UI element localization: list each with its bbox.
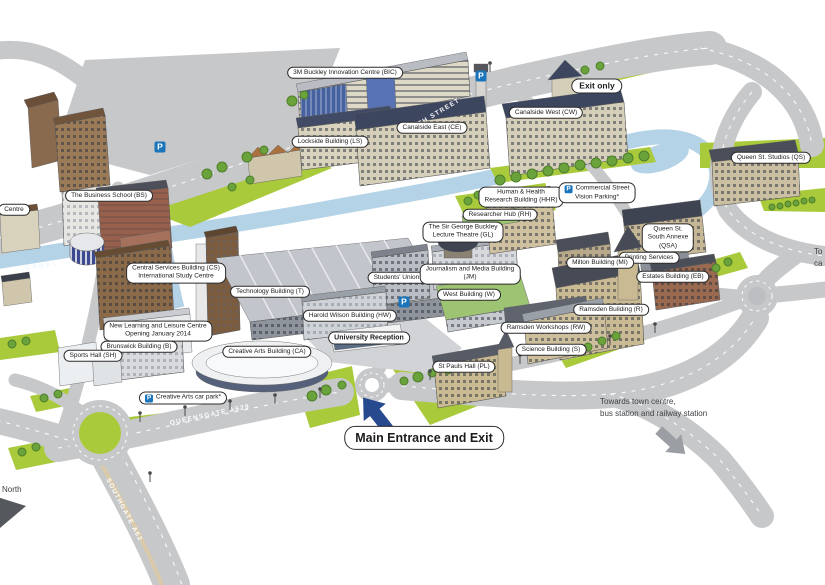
text-north-label: North (2, 484, 22, 496)
label-text: Researcher Hub (RH) (469, 211, 532, 218)
label-canalside-west: Canalside West (CW) (509, 107, 583, 119)
parking-icon-car-park-top-left: P (155, 142, 166, 153)
label-text: Creative Arts Building (CA) (228, 348, 305, 355)
label-ramsden-workshops: Ramsden Workshops (RW) (501, 322, 592, 334)
label-text: Milton Building (MI) (572, 259, 628, 266)
label-text: Main Entrance and Exit (355, 431, 493, 445)
label-main-entrance-and-exit: Main Entrance and Exit (344, 426, 504, 450)
label-journalism-and-media-building: Journalism and Media Building(JM) (420, 264, 521, 285)
labels-overlay: 3M Buckley Innovation Centre (BIC)Exit o… (0, 0, 825, 585)
label-exit-only: Exit only (571, 78, 622, 93)
label-text: St Pauls Hall (PL) (438, 363, 489, 370)
label-commercial-street-vision-parking: PCommercial StreetVision Parking* (559, 182, 636, 203)
label-business-school: The Business School (BS) (65, 190, 153, 202)
label-text: Lockside Building (LS) (298, 138, 363, 145)
label-left-edge-centre: Centre (0, 204, 30, 216)
label-text: Human & HealthResearch Building (HHR) (485, 189, 558, 204)
label-text: Exit only (579, 80, 614, 90)
label-west-building: West Building (W) (437, 289, 501, 301)
road-label-southgate: SOUTHGATE A62 (104, 477, 143, 543)
label-text: Creative Arts car park* (156, 394, 221, 401)
label-science-building: Science Building (S) (516, 344, 587, 356)
label-sports-hall: Sports Hall (SH) (64, 350, 123, 362)
parking-icon-car-park-centre: P (399, 297, 410, 308)
label-estates-building: Estates Building (EB) (636, 271, 709, 283)
label-text: West Building (W) (443, 291, 495, 298)
parking-icon: P (145, 395, 153, 403)
label-ramsden-building: Ramsden Building (R) (573, 304, 649, 316)
label-creative-arts-car-park: PCreative Arts car park* (139, 392, 227, 405)
label-text: Canalside East (CE) (403, 124, 462, 131)
label-3m-buckley-innovation-centre: 3M Buckley Innovation Centre (BIC) (287, 67, 403, 79)
label-technology-building: Technology Building (T) (230, 286, 310, 298)
label-st-pauls-hall: St Pauls Hall (PL) (432, 361, 495, 373)
parking-icon-car-park-bic: P (476, 71, 487, 82)
label-human-health-research-building: Human & HealthResearch Building (HHR) (479, 187, 564, 208)
label-text: Central Services Building (CS)Internatio… (132, 265, 220, 280)
label-harold-wilson-building: Harold Wilson Building (HW) (303, 310, 397, 322)
label-canalside-east: Canalside East (CE) (397, 122, 468, 134)
road-label-canal: CANAL (25, 260, 59, 272)
label-text: Canalside West (CW) (515, 109, 577, 116)
label-text: Harold Wilson Building (HW) (309, 312, 391, 319)
label-text: Estates Building (EB) (642, 273, 703, 280)
label-text: Journalism and Media Building(JM) (426, 266, 515, 281)
label-creative-arts-building: Creative Arts Building (CA) (222, 346, 311, 358)
label-text: The Business School (BS) (71, 192, 147, 199)
road-label-queensgate: QUEENSGATE A629 (169, 403, 250, 427)
label-text: Ramsden Building (R) (579, 306, 643, 313)
label-text: Science Building (S) (522, 346, 581, 353)
label-text: Ramsden Workshops (RW) (507, 324, 586, 331)
label-new-learning-and-leisure-centre: New Learning and Leisure CentreOpening J… (103, 321, 212, 342)
label-text: Queen St. Studios (QS) (737, 154, 805, 161)
label-university-reception: University Reception (328, 331, 410, 344)
label-queen-st-studios: Queen St. Studios (QS) (731, 152, 811, 164)
label-queen-st-south-annexe: Queen St.South Annexe(QSA) (642, 223, 694, 252)
label-text: University Reception (334, 334, 404, 341)
label-text: New Learning and Leisure CentreOpening J… (109, 323, 206, 338)
label-researcher-hub: Researcher Hub (RH) (463, 209, 538, 221)
label-text: Queen St.South Annexe(QSA) (648, 225, 688, 249)
text-towards-town-centre: Towards town centre,bus station and rail… (600, 396, 707, 420)
label-text: Technology Building (T) (236, 288, 304, 295)
label-lockside-building: Lockside Building (LS) (292, 136, 369, 148)
label-text: Brunswick Building (B) (106, 343, 171, 350)
label-sir-george-buckley-lecture-theatre: The Sir George BuckleyLecture Theatre (G… (422, 222, 503, 243)
label-text: The Sir George BuckleyLecture Theatre (G… (428, 224, 497, 239)
label-central-services-building: Central Services Building (CS)Internatio… (126, 263, 226, 284)
label-text: Commercial StreetVision Parking* (575, 184, 629, 200)
parking-icon: P (565, 185, 573, 193)
label-right-edge-towards: Toca (814, 246, 822, 270)
label-text: 3M Buckley Innovation Centre (BIC) (293, 69, 397, 76)
label-milton-building: Milton Building (MI) (566, 257, 634, 269)
label-text: Sports Hall (SH) (70, 352, 117, 359)
campus-map: 3M Buckley Innovation Centre (BIC)Exit o… (0, 0, 825, 585)
